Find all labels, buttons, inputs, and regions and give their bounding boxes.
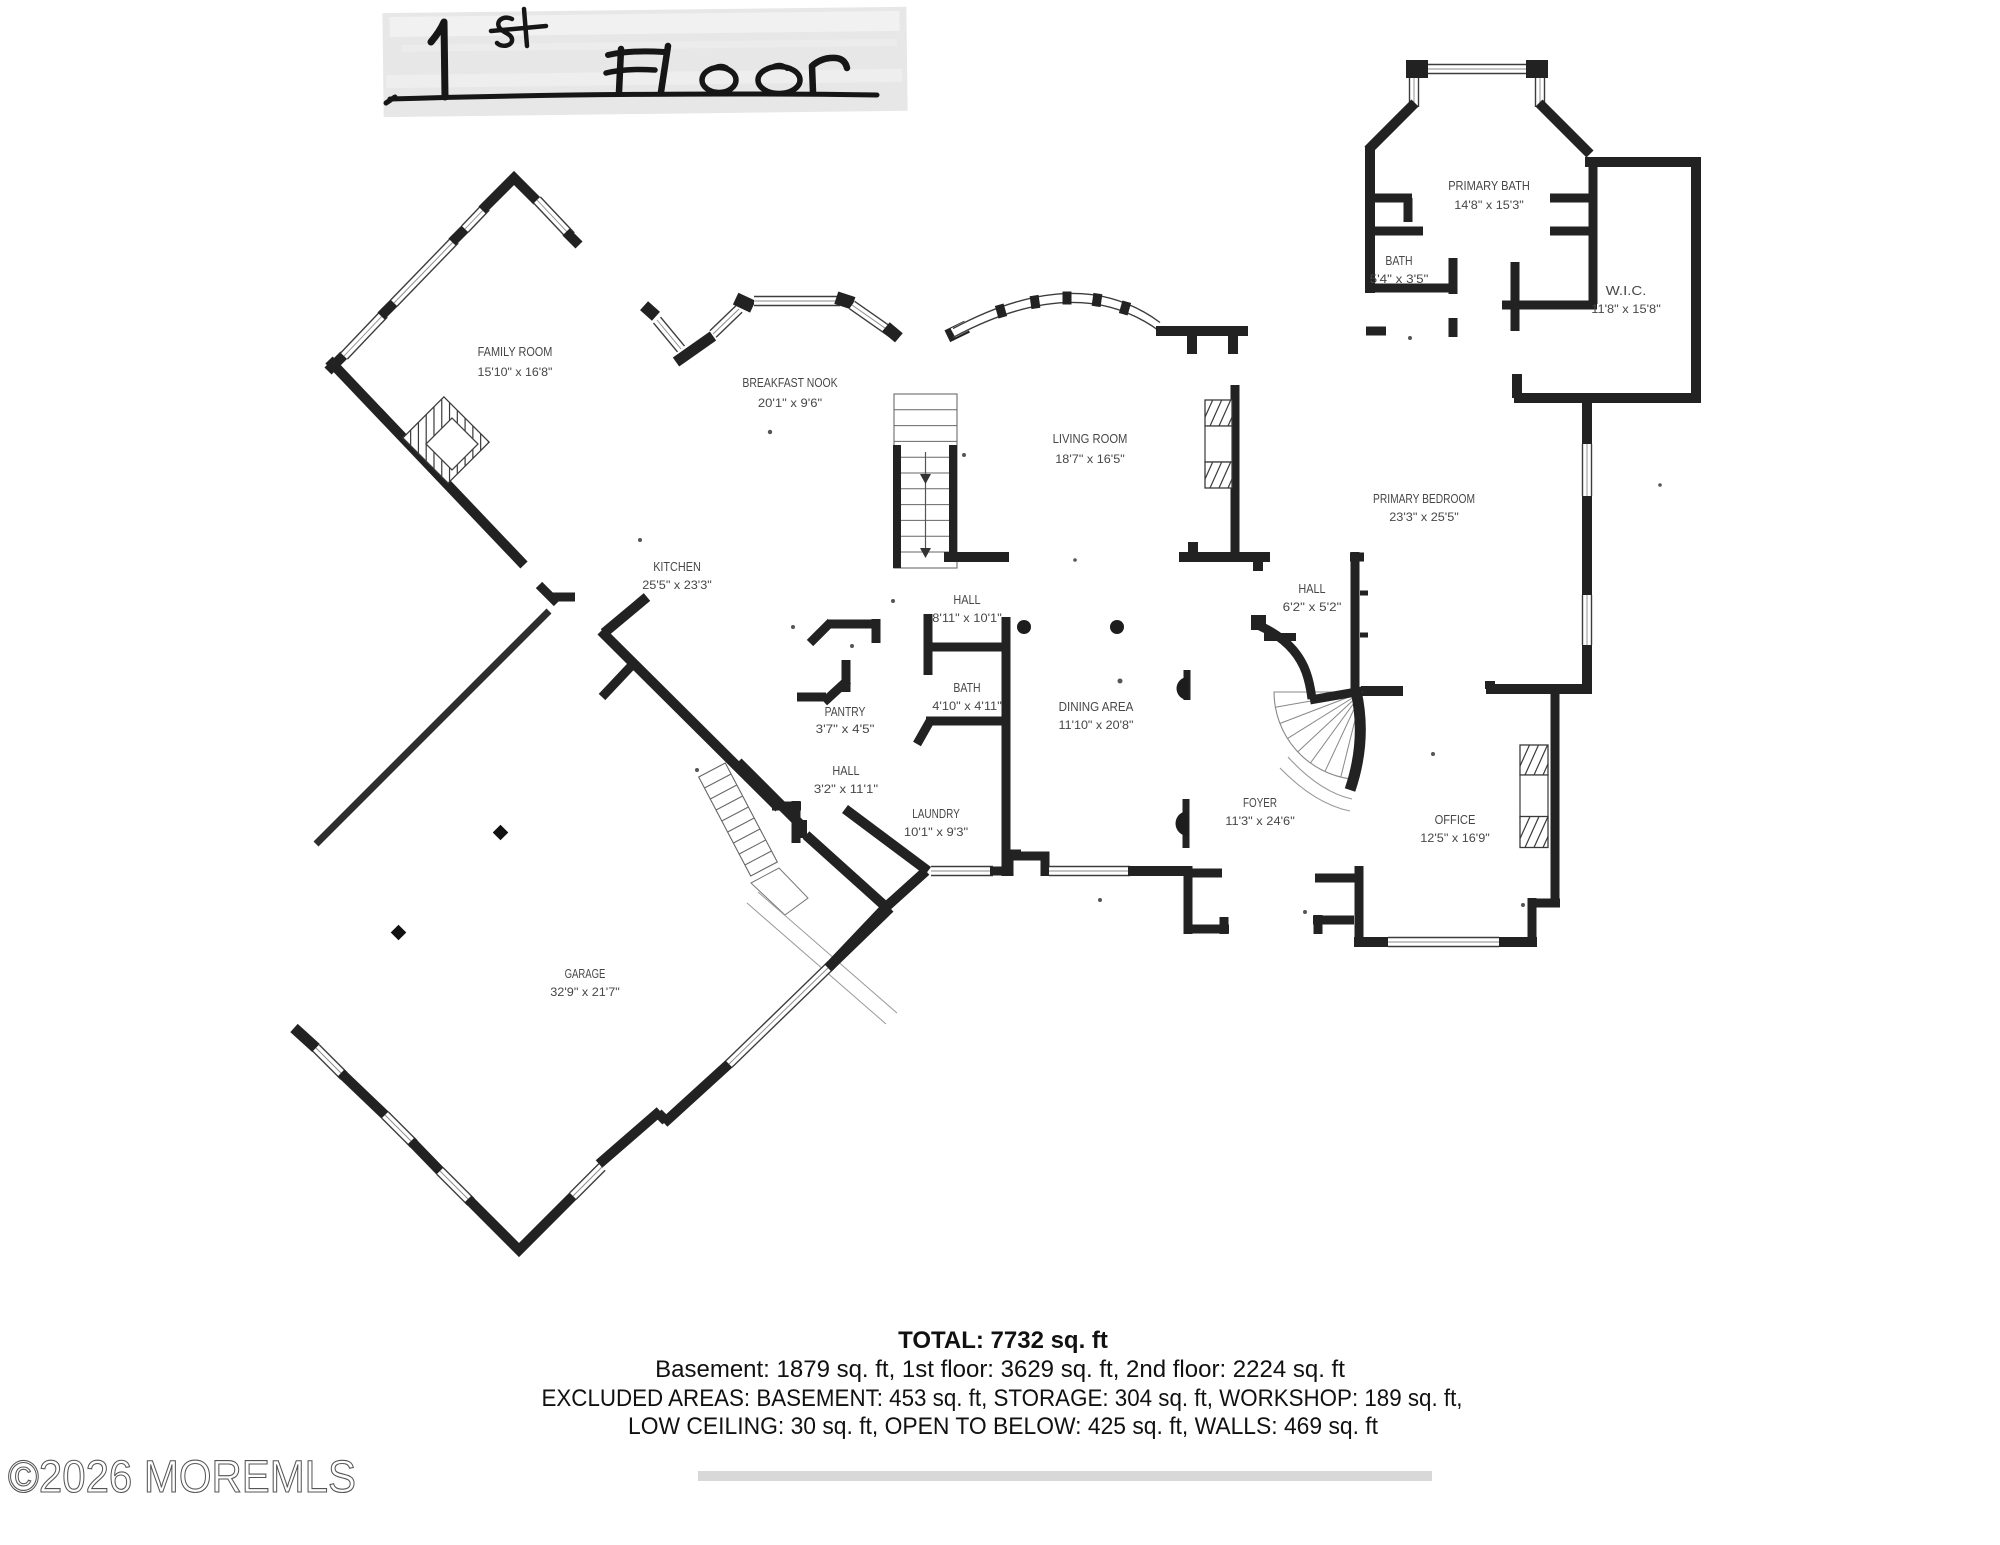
svg-text:LOW CEILING: 30 sq. ft, OPEN T: LOW CEILING: 30 sq. ft, OPEN TO BELOW: 4… <box>628 1413 1378 1440</box>
svg-text:11'3" x 24'6": 11'3" x 24'6" <box>1225 814 1295 828</box>
svg-text:4'10" x 4'11": 4'10" x 4'11" <box>932 699 1002 713</box>
svg-text:32'9" x 21'7": 32'9" x 21'7" <box>550 985 620 999</box>
svg-text:TOTAL: 7732 sq. ft: TOTAL: 7732 sq. ft <box>898 1327 1108 1354</box>
svg-text:BATH: BATH <box>1385 253 1412 268</box>
svg-text:LIVING ROOM: LIVING ROOM <box>1053 431 1128 446</box>
svg-text:FOYER: FOYER <box>1243 795 1277 810</box>
svg-text:FAMILY ROOM: FAMILY ROOM <box>478 344 553 359</box>
svg-text:BATH: BATH <box>953 680 980 695</box>
svg-text:HALL: HALL <box>1298 581 1325 596</box>
svg-text:6'2" x 5'2": 6'2" x 5'2" <box>1283 600 1342 614</box>
svg-text:23'3" x 25'5": 23'3" x 25'5" <box>1389 510 1459 524</box>
svg-text:HALL: HALL <box>953 592 980 607</box>
svg-text:PRIMARY BEDROOM: PRIMARY BEDROOM <box>1373 491 1475 506</box>
svg-text:3'7" x 4'5": 3'7" x 4'5" <box>816 722 875 736</box>
svg-text:GARAGE: GARAGE <box>565 966 606 981</box>
svg-text:PANTRY: PANTRY <box>825 704 866 719</box>
svg-text:15'10" x 16'8": 15'10" x 16'8" <box>478 365 553 379</box>
svg-text:20'1" x 9'6": 20'1" x 9'6" <box>758 396 822 410</box>
svg-text:HALL: HALL <box>832 763 859 778</box>
svg-text:25'5" x 23'3": 25'5" x 23'3" <box>642 578 712 592</box>
svg-text:10'1" x 9'3": 10'1" x 9'3" <box>904 825 968 839</box>
svg-text:KITCHEN: KITCHEN <box>653 559 701 574</box>
svg-text:LAUNDRY: LAUNDRY <box>912 806 960 821</box>
svg-text:OFFICE: OFFICE <box>1435 812 1476 827</box>
svg-text:18'7" x 16'5": 18'7" x 16'5" <box>1055 452 1125 466</box>
svg-text:BREAKFAST NOOK: BREAKFAST NOOK <box>742 375 837 390</box>
svg-text:PRIMARY BATH: PRIMARY BATH <box>1448 178 1530 193</box>
svg-text:8'11" x 10'1": 8'11" x 10'1" <box>932 611 1002 625</box>
svg-text:12'5" x 16'9": 12'5" x 16'9" <box>1420 831 1490 845</box>
svg-text:DINING AREA: DINING AREA <box>1059 699 1134 714</box>
svg-text:©2026 MOREMLS: ©2026 MOREMLS <box>8 1451 356 1502</box>
svg-text:14'8" x 15'3": 14'8" x 15'3" <box>1454 198 1524 212</box>
svg-text:EXCLUDED AREAS: BASEMENT: 453: EXCLUDED AREAS: BASEMENT: 453 sq. ft, ST… <box>542 1385 1463 1412</box>
svg-text:3'2" x 11'1": 3'2" x 11'1" <box>814 782 878 796</box>
svg-text:11'10" x 20'8": 11'10" x 20'8" <box>1059 718 1134 732</box>
svg-text:11'8" x 15'8": 11'8" x 15'8" <box>1591 302 1661 316</box>
svg-text:W.I.C.: W.I.C. <box>1606 283 1647 298</box>
svg-text:Basement: 1879 sq. ft, 1st flo: Basement: 1879 sq. ft, 1st floor: 3629 s… <box>655 1356 1345 1383</box>
